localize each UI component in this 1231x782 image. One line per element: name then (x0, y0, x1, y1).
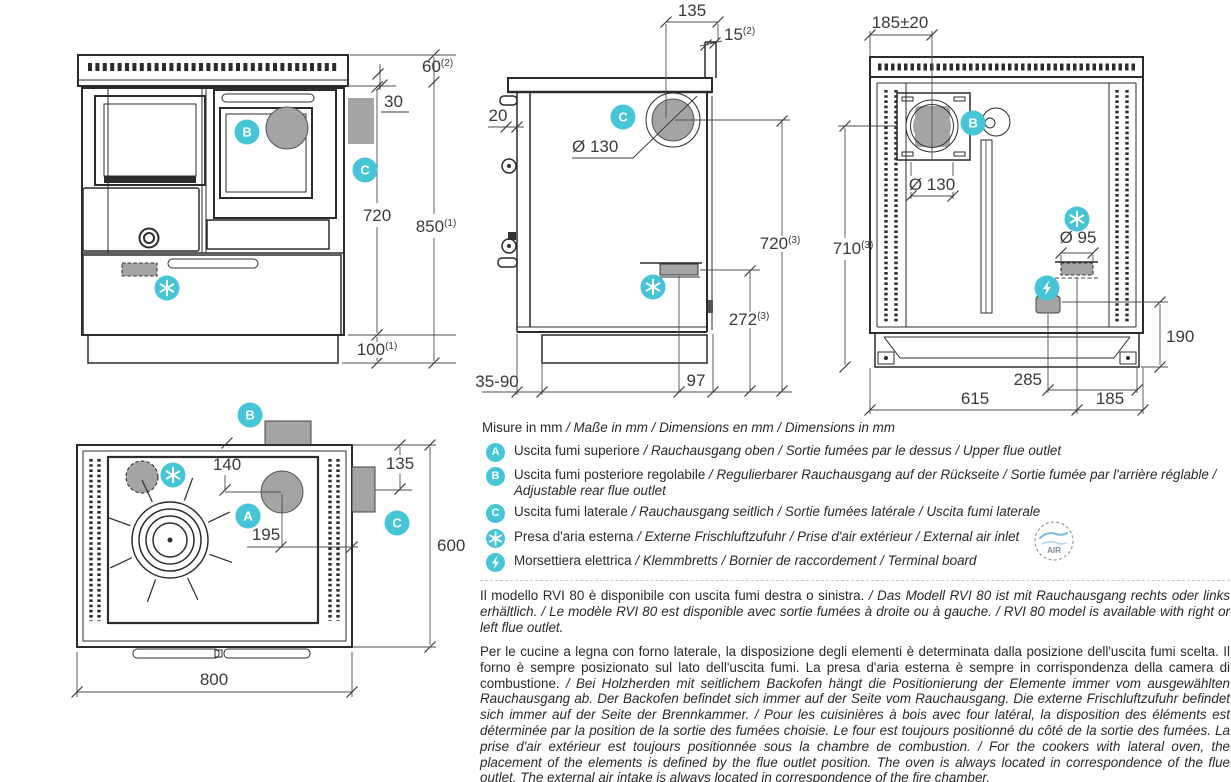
hinge-pin-bottom (498, 258, 517, 267)
dim-top-135: 135 (386, 454, 414, 473)
legend-item-side-flue: C Uscita fumi laterale / Rauchausgang se… (486, 504, 1230, 523)
dim-top-195: 195 (252, 525, 280, 544)
oven-handle (222, 94, 314, 102)
air-knob (140, 229, 159, 248)
foot-rail-left (133, 649, 219, 658)
dim-front-60: 60(2) (422, 57, 453, 76)
foot-rail-right (224, 649, 310, 658)
side-view: 135 15(2) 20 Ø 130 720(3) 272(3) 35-90 9… (475, 1, 805, 398)
badge-b-front: B (235, 120, 260, 145)
rear-flue-box-top (265, 421, 311, 445)
worktop-side (508, 78, 712, 92)
legend-item-terminal: Morsettiera elettrica / Klemmbretts / Bo… (486, 553, 1230, 572)
air-inlet-top (126, 461, 158, 493)
badge-a-icon: A (486, 443, 505, 462)
badge-b-rear: B (961, 111, 986, 136)
technical-sheet: 60(2) 30 720 850(1) 100(1) B C (0, 0, 1231, 782)
svg-text:B: B (242, 125, 251, 140)
plinth-rear (875, 333, 1139, 367)
dim-rear-710: 710(3) (833, 239, 874, 258)
legend-item-upper-flue: A Uscita fumi superiore / Rauchausgang o… (486, 443, 1230, 462)
badge-c-front: C (353, 158, 378, 183)
legend-text-c: Uscita fumi laterale / Rauchausgang seit… (514, 504, 1040, 520)
badge-air-front (155, 276, 180, 301)
dim-front-30: 30 (384, 92, 403, 111)
info-panel: Misure in mm / Maße in mm / Dimensions e… (480, 420, 1230, 782)
note-oven-position: Per le cucine a legna con forno laterale… (480, 644, 1230, 782)
dim-top-800: 800 (200, 670, 228, 689)
front-outline (78, 55, 374, 363)
legend-text-a: Uscita fumi superiore / Rauchausgang obe… (514, 443, 1061, 459)
dim-rear-185pm: 185±20 (872, 13, 929, 32)
side-flue-box-front (348, 98, 374, 144)
units-note: Misure in mm / Maße in mm / Dimensions e… (482, 420, 1230, 436)
legend-text-power: Morsettiera elettrica / Klemmbretts / Bo… (514, 553, 976, 569)
legend-item-air-inlet: Presa d'aria esterna / Externe Frischluf… (486, 529, 1230, 548)
lightning-icon (486, 553, 505, 572)
dim-rear-285: 285 (1014, 370, 1042, 389)
badge-b-icon: B (486, 467, 505, 486)
svg-text:B: B (245, 408, 254, 423)
dim-front-850: 850(1) (416, 217, 457, 236)
badge-air-rear (1065, 207, 1090, 232)
dim-side-97: 97 (687, 371, 706, 390)
front-view: 60(2) 30 720 850(1) 100(1) B C (78, 50, 456, 369)
plinth (88, 335, 338, 363)
badge-a-top: A (236, 504, 261, 529)
badge-air-top (161, 463, 186, 488)
dim-top-140: 140 (213, 455, 241, 474)
air-inlet-front (122, 263, 157, 276)
svg-text:C: C (618, 110, 628, 125)
legend-item-rear-flue: B Uscita fumi posteriore regolabile / Re… (486, 467, 1230, 499)
badge-b-top: B (238, 403, 263, 428)
divider (480, 580, 1230, 581)
drawer-handle (168, 259, 258, 268)
plinth-side (542, 335, 707, 363)
rear-view: 185±20 Ø 130 710(3) Ø 95 190 285 615 185… (833, 13, 1195, 416)
air-inlet-side (660, 264, 698, 275)
hinge-pin-top (500, 96, 517, 105)
side-outline (498, 42, 716, 363)
note-flue-options: Il modello RVI 80 è disponibile con usci… (480, 588, 1230, 635)
badge-c-icon: C (486, 504, 505, 523)
legend-text-b: Uscita fumi posteriore regolabile / Regu… (514, 467, 1230, 499)
firebox-glass-door (95, 96, 205, 185)
dim-side-feet: 35-90 (475, 372, 518, 391)
snowflake-icon (486, 529, 505, 548)
badge-air-side (641, 275, 666, 300)
dim-side-135: 135 (678, 1, 706, 20)
dim-rear-615: 615 (961, 389, 989, 408)
rear-outline (870, 57, 1143, 367)
dim-side-dia130: Ø 130 (572, 137, 618, 156)
dim-rear-dia130: Ø 130 (909, 175, 955, 194)
dim-front-720: 720 (363, 206, 391, 225)
dim-rear-190: 190 (1166, 327, 1194, 346)
dim-side-20: 20 (489, 106, 508, 125)
legend-text-air: Presa d'aria esterna / Externe Frischluf… (514, 529, 1019, 545)
dim-rear-185: 185 (1096, 389, 1124, 408)
svg-text:C: C (360, 163, 370, 178)
badge-c-top: C (385, 511, 410, 536)
blanking-disc (982, 108, 1010, 136)
air-inlet-rear (1061, 263, 1093, 275)
svg-text:A: A (243, 509, 253, 524)
svg-text:B: B (968, 116, 977, 131)
svg-text:AIR: AIR (1047, 546, 1061, 555)
top-view: 140 195 135 600 800 B A C (72, 403, 466, 698)
badge-power-rear (1035, 276, 1060, 301)
dim-top-600: 600 (437, 536, 465, 555)
side-flue-box-top (352, 467, 375, 512)
rear-flue-circle-front (266, 107, 308, 149)
clean-air-logo: AIR (1032, 519, 1076, 563)
rear-divider (981, 140, 992, 313)
badge-c-side: C (611, 105, 636, 130)
dim-side-15: 15(2) (724, 25, 755, 44)
svg-text:C: C (392, 516, 402, 531)
